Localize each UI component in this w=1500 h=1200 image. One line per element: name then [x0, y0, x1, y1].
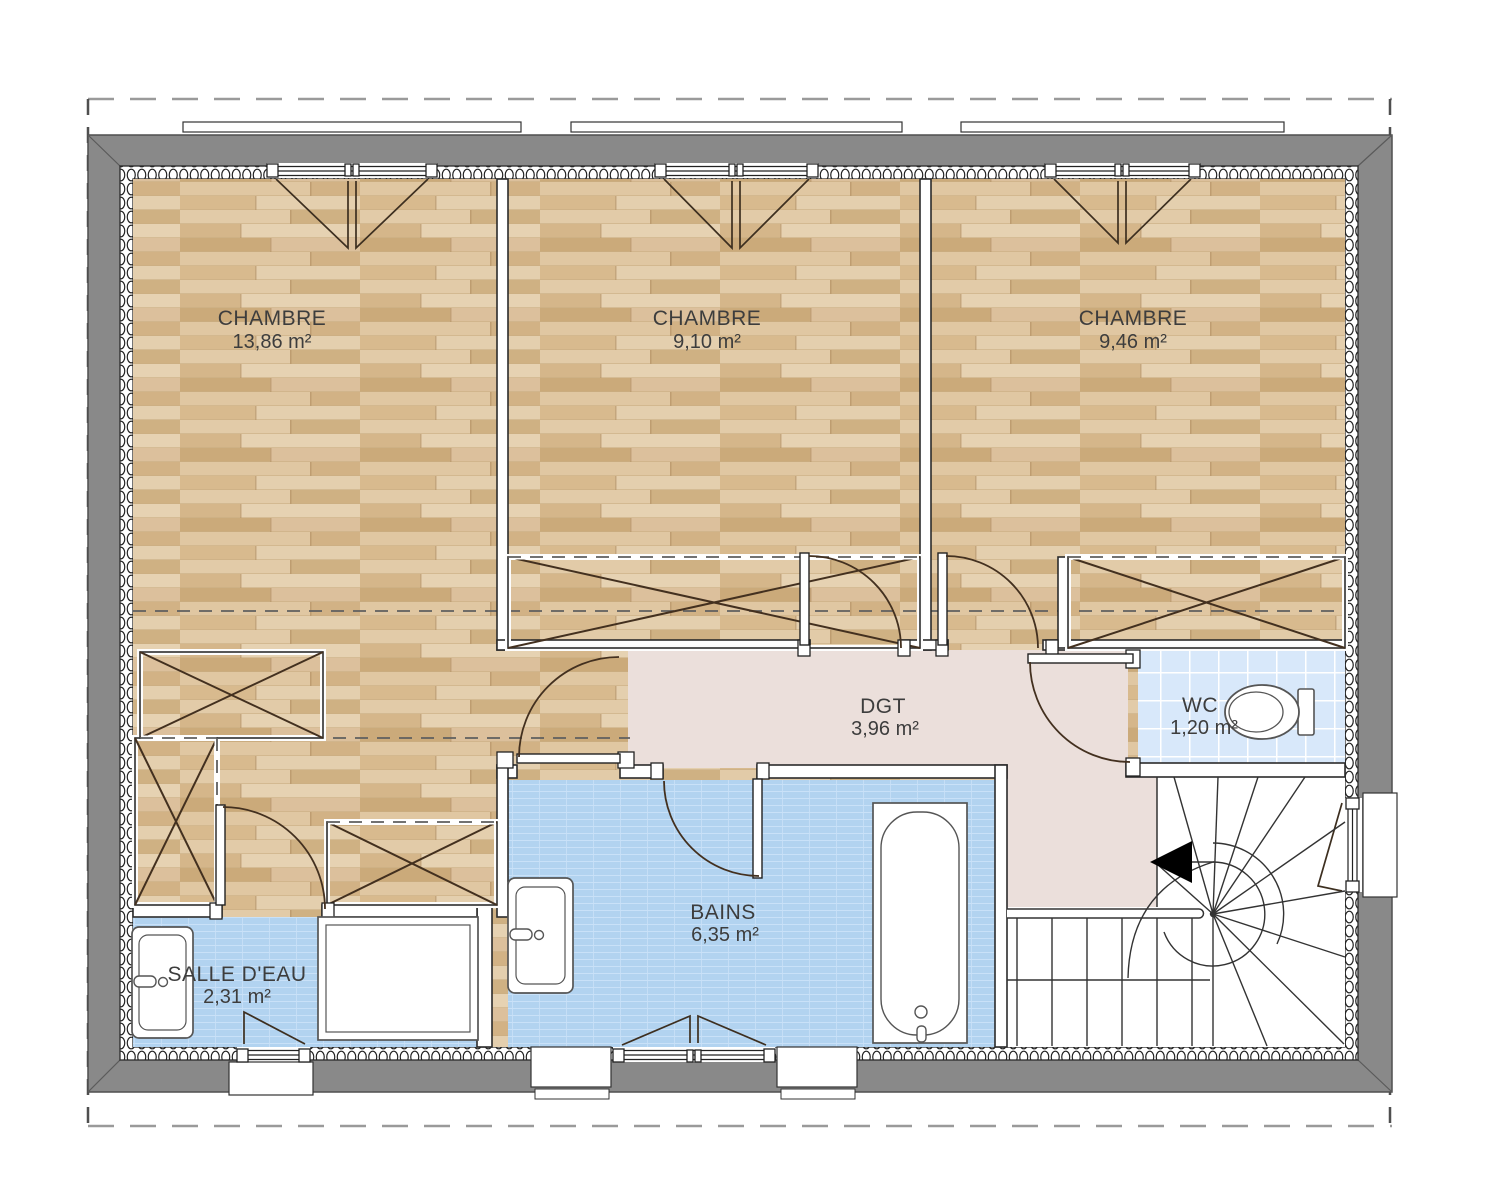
label-chambre2-area: 9,10 m²: [673, 331, 741, 353]
label-wc-name: WC: [1182, 694, 1218, 717]
label-bains-name: BAINS: [690, 901, 756, 924]
bathtub: [873, 803, 967, 1043]
door-leaf-salle-deau: [216, 805, 225, 905]
toilet: [1225, 685, 1314, 739]
label-chambre1-name: CHAMBRE: [218, 307, 327, 330]
shower-tray: [318, 917, 478, 1040]
floor-plan: CHAMBRE 13,86 m² CHAMBRE 9,10 m² CHAMBRE…: [0, 0, 1500, 1200]
label-chambre1-area: 13,86 m²: [233, 331, 312, 353]
label-salle-deau-name: SALLE D'EAU: [167, 963, 306, 986]
label-bains-area: 6,35 m²: [691, 924, 759, 946]
label-chambre3-name: CHAMBRE: [1079, 307, 1188, 330]
floor-plan-canvas: CHAMBRE 13,86 m² CHAMBRE 9,10 m² CHAMBRE…: [0, 0, 1500, 1200]
door-leaf-chambre3: [938, 553, 947, 645]
label-salle-deau-area: 2,31 m²: [203, 986, 271, 1008]
door-leaf-bains: [753, 779, 762, 878]
stair-floor-flight: [1007, 907, 1345, 1047]
sink-bains: [508, 878, 573, 993]
label-dgt-area: 3,96 m²: [851, 718, 919, 740]
door-leaf-chambre2: [800, 553, 809, 645]
door-leaf-wc: [1028, 654, 1133, 663]
label-dgt-name: DGT: [860, 695, 906, 718]
label-chambre3-area: 9,46 m²: [1099, 331, 1167, 353]
label-chambre2-name: CHAMBRE: [653, 307, 762, 330]
dgt-floor-lower: [1007, 768, 1157, 907]
door-leaf-chambre1: [517, 754, 620, 763]
stair-handrail: [1007, 909, 1204, 918]
label-wc-area: 1,20 m²: [1170, 717, 1238, 739]
